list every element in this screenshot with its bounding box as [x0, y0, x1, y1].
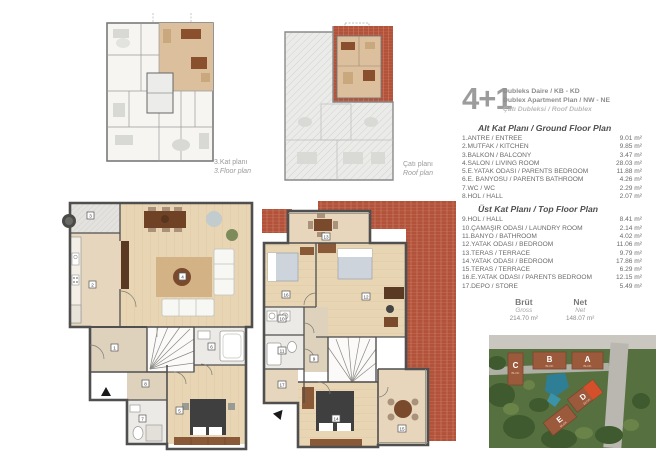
label-3kat-tr: 3.Kat planı — [214, 159, 251, 168]
top-floor-plan: 13 16 10 11 17 9 12 14 15 — [258, 197, 458, 465]
room-area: 2.29 m² — [620, 185, 642, 193]
room-area: 4.26 m² — [620, 176, 642, 184]
ground-floor-title: Alt Kat Planı / Ground Floor Plan — [478, 123, 642, 133]
room-row: 11.BANYO / BATHROOM4.02 m² — [462, 233, 642, 241]
entrance-arrow — [101, 387, 111, 396]
plant — [226, 229, 238, 241]
svg-text:11: 11 — [280, 348, 285, 353]
label-cati-en: Roof plan — [403, 170, 433, 179]
room-label: 2.MUTFAK / KITCHEN — [462, 143, 529, 151]
room-area: 12.15 m² — [616, 274, 642, 282]
round-rug — [206, 211, 222, 227]
subtitle-line2: Dublex Apartment Plan / NW - NE — [503, 96, 610, 105]
room-area: 3.47 m² — [620, 152, 642, 160]
svg-text:BLOK: BLOK — [545, 364, 553, 368]
flow-arrow — [273, 407, 286, 420]
block-a: A BLOK — [572, 352, 603, 369]
room-row: 5.E.YATAK ODASI / PARENTS BEDROOM11.88 m… — [462, 168, 642, 176]
svg-text:10: 10 — [279, 316, 285, 321]
svg-text:4: 4 — [181, 274, 184, 279]
room-area: 17.86 m² — [616, 258, 642, 266]
room-row: 3.BALKON / BALCONY3.47 m² — [462, 152, 642, 160]
info-panel: 4+1 Dubleks Daire / KB - KD Dublex Apart… — [462, 84, 642, 323]
room-label: 6.E. BANYOSU / PARENTS BATHROOM — [462, 176, 583, 184]
svg-text:2: 2 — [91, 282, 94, 287]
room-area: 28.03 m² — [616, 160, 642, 168]
keyplan-roof — [281, 22, 397, 184]
room-row: 14.YATAK ODASI / BEDROOM17.86 m² — [462, 258, 642, 266]
subtitle-line3: Çatı Dubleksi / Roof Dublex — [503, 105, 610, 114]
wardrobe — [174, 437, 240, 445]
unit-subtitle: Dubleks Daire / KB - KD Dublex Apartment… — [503, 87, 610, 114]
net-total: Net Net 148.07 m² — [566, 298, 594, 323]
room-label: 13.TERAS / TERRACE — [462, 250, 530, 258]
svg-text:8: 8 — [144, 381, 147, 386]
block-c: C BLOK — [508, 353, 523, 385]
svg-text:5: 5 — [178, 408, 181, 413]
svg-text:6: 6 — [210, 344, 213, 349]
svg-text:3: 3 — [89, 213, 92, 218]
top-floor-title: Üst Kat Planı / Top Floor Plan — [478, 204, 642, 214]
room-label: 5.E.YATAK ODASI / PARENTS BEDROOM — [462, 168, 588, 176]
room-label: 9.HOL / HALL — [462, 216, 503, 224]
room-row: 2.MUTFAK / KITCHEN9.85 m² — [462, 143, 642, 151]
room-area: 9.79 m² — [620, 250, 642, 258]
label-roof-plan: Çatı planı Roof plan — [403, 161, 433, 178]
room-label: 16.E.YATAK ODASI / PARENTS BEDROOM — [462, 274, 592, 282]
stairs — [147, 327, 194, 372]
svg-text:7: 7 — [141, 416, 144, 421]
room-row: 15.TERAS / TERRACE6.29 m² — [462, 266, 642, 274]
room-area: 11.88 m² — [616, 168, 642, 176]
room-row: 4.SALON / LIVING ROOM28.03 m² — [462, 160, 642, 168]
room-label: 1.ANTRE / ENTREE — [462, 135, 522, 143]
svg-text:B: B — [547, 355, 553, 364]
room-row: 10.ÇAMAŞIR ODASI / LAUNDRY ROOM2.14 m² — [462, 225, 642, 233]
room-label: 15.TERAS / TERRACE — [462, 266, 530, 274]
svg-text:A: A — [585, 355, 591, 364]
room-label: 10.ÇAMAŞIR ODASI / LAUNDRY ROOM — [462, 225, 583, 233]
svg-text:14: 14 — [333, 416, 339, 421]
room-label: 3.BALKON / BALCONY — [462, 152, 531, 160]
room-area: 8.41 m² — [620, 216, 642, 224]
svg-text:15: 15 — [399, 426, 405, 431]
totals: Brüt Gross 214.70 m² Net Net 148.07 m² — [462, 298, 642, 323]
svg-text:12: 12 — [363, 294, 369, 299]
svg-text:16: 16 — [283, 292, 289, 297]
room-row: 7.WC / WC2.29 m² — [462, 185, 642, 193]
svg-text:1: 1 — [113, 345, 116, 350]
stairs-top — [328, 337, 376, 382]
floorplan-sheet: 3.Kat planı 3.Floor plan — [0, 0, 660, 466]
block-b: B BLOK — [533, 352, 566, 369]
room-area: 9.85 m² — [620, 143, 642, 151]
svg-text:BLOK: BLOK — [583, 364, 591, 368]
room-label: 11.BANYO / BATHROOM — [462, 233, 537, 241]
room-label: 8.HOL / HALL — [462, 193, 503, 201]
room-row: 13.TERAS / TERRACE9.79 m² — [462, 250, 642, 258]
room-row: 6.E. BANYOSU / PARENTS BATHROOM4.26 m² — [462, 176, 642, 184]
room-area: 2.14 m² — [620, 225, 642, 233]
room-area: 11.06 m² — [616, 241, 642, 249]
room-area: 4.02 m² — [620, 233, 642, 241]
gross-value: 214.70 m² — [510, 315, 538, 323]
svg-text:BLOK: BLOK — [511, 371, 519, 375]
room-row: 16.E.YATAK ODASI / PARENTS BEDROOM12.15 … — [462, 274, 642, 282]
tv-cabinet — [121, 241, 129, 289]
gross-label-en: Gross — [510, 307, 538, 315]
room-label: 17.DEPO / STORE — [462, 283, 518, 291]
ground-floor-room-list: 1.ANTRE / ENTREE9.01 m² 2.MUTFAK / KITCH… — [462, 135, 642, 201]
room-area: 2.07 m² — [620, 193, 642, 201]
room-label: 7.WC / WC — [462, 185, 495, 193]
entry-hall-floor — [90, 327, 147, 372]
room-area: 6.29 m² — [620, 266, 642, 274]
room-label: 12.YATAK ODASI / BEDROOM — [462, 241, 553, 249]
gross-label: Brüt — [510, 298, 538, 307]
room-label: 4.SALON / LIVING ROOM — [462, 160, 539, 168]
room-label: 14.YATAK ODASI / BEDROOM — [462, 258, 553, 266]
kitchen-counter — [70, 237, 81, 323]
svg-text:13: 13 — [323, 234, 329, 239]
top-floor-room-list: 9.HOL / HALL8.41 m² 10.ÇAMAŞIR ODASI / L… — [462, 216, 642, 291]
room-row: 12.YATAK ODASI / BEDROOM11.06 m² — [462, 241, 642, 249]
label-3rd-floor-plan: 3.Kat planı 3.Floor plan — [214, 159, 251, 176]
ground-floor-plan: 3 2 4 1 6 8 7 5 — [62, 197, 258, 461]
net-value: 148.07 m² — [566, 315, 594, 323]
dining-table — [144, 207, 186, 232]
site-plan-aerial: C BLOK B BLOK A BLOK D BLOK E — [489, 335, 656, 448]
room-row: 17.DEPO / STORE5.49 m² — [462, 283, 642, 291]
net-label-en: Net — [566, 307, 594, 315]
label-3kat-en: 3.Floor plan — [214, 168, 251, 177]
room-row: 9.HOL / HALL8.41 m² — [462, 216, 642, 224]
room-row: 1.ANTRE / ENTREE9.01 m² — [462, 135, 642, 143]
keyplan-3rd-floor — [103, 13, 217, 165]
net-label: Net — [566, 298, 594, 307]
subtitle-line1: Dubleks Daire / KB - KD — [503, 87, 610, 96]
balcony-floor — [70, 203, 120, 233]
room-area: 5.49 m² — [620, 283, 642, 291]
room-area: 9.01 m² — [620, 135, 642, 143]
svg-text:9: 9 — [313, 356, 316, 361]
room-row: 8.HOL / HALL2.07 m² — [462, 193, 642, 201]
svg-text:17: 17 — [279, 382, 285, 387]
gross-total: Brüt Gross 214.70 m² — [510, 298, 538, 323]
label-cati-tr: Çatı planı — [403, 161, 433, 170]
svg-text:C: C — [513, 361, 519, 370]
